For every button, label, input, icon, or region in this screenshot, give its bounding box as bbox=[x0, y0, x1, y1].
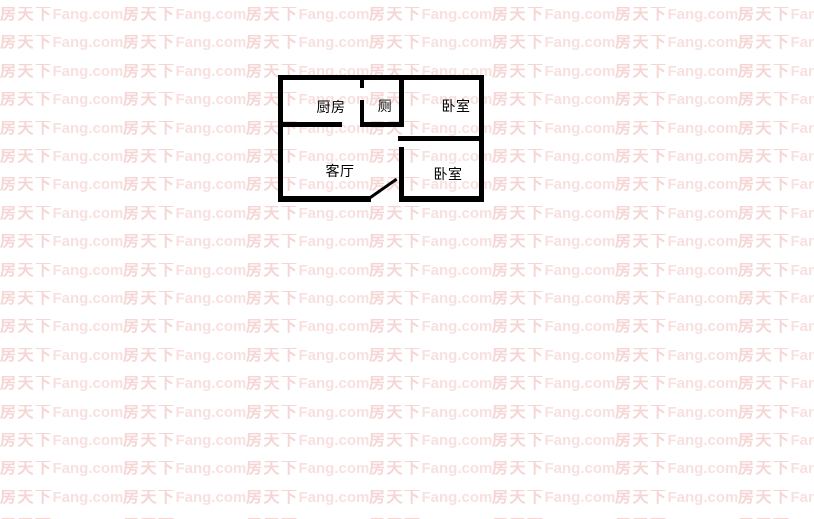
floorplan-diagram: 厨房 厕 卧室 客厅 卧室 bbox=[0, 0, 814, 519]
wall-outer-left bbox=[278, 75, 283, 202]
wall-toilet-bottom bbox=[360, 122, 404, 127]
room-label-toilet: 厕 bbox=[378, 96, 393, 116]
wall-outer-top bbox=[278, 75, 484, 80]
room-label-kitchen: 厨房 bbox=[317, 97, 346, 117]
wall-bedroom-bottom-bottom bbox=[399, 196, 484, 202]
wall-toilet-left-upper bbox=[360, 75, 364, 88]
wall-bedroom-bottom-left bbox=[399, 147, 404, 202]
room-label-bedroom-bottom: 卧室 bbox=[434, 164, 463, 184]
wall-kitchen-bottom bbox=[278, 122, 342, 127]
floorplan-image: 房天下Fang.com房天下Fang.com房天下Fang.com房天下Fang… bbox=[0, 0, 814, 519]
wall-bedroom-top-bottom bbox=[398, 136, 484, 141]
wall-living-bottom bbox=[278, 196, 371, 202]
wall-toilet-left-lower bbox=[360, 100, 364, 127]
wall-toilet-right bbox=[399, 75, 404, 127]
entrance-door-swing-line bbox=[366, 178, 397, 201]
room-label-bedroom-top: 卧室 bbox=[442, 96, 471, 116]
room-label-living-room: 客厅 bbox=[326, 161, 355, 181]
